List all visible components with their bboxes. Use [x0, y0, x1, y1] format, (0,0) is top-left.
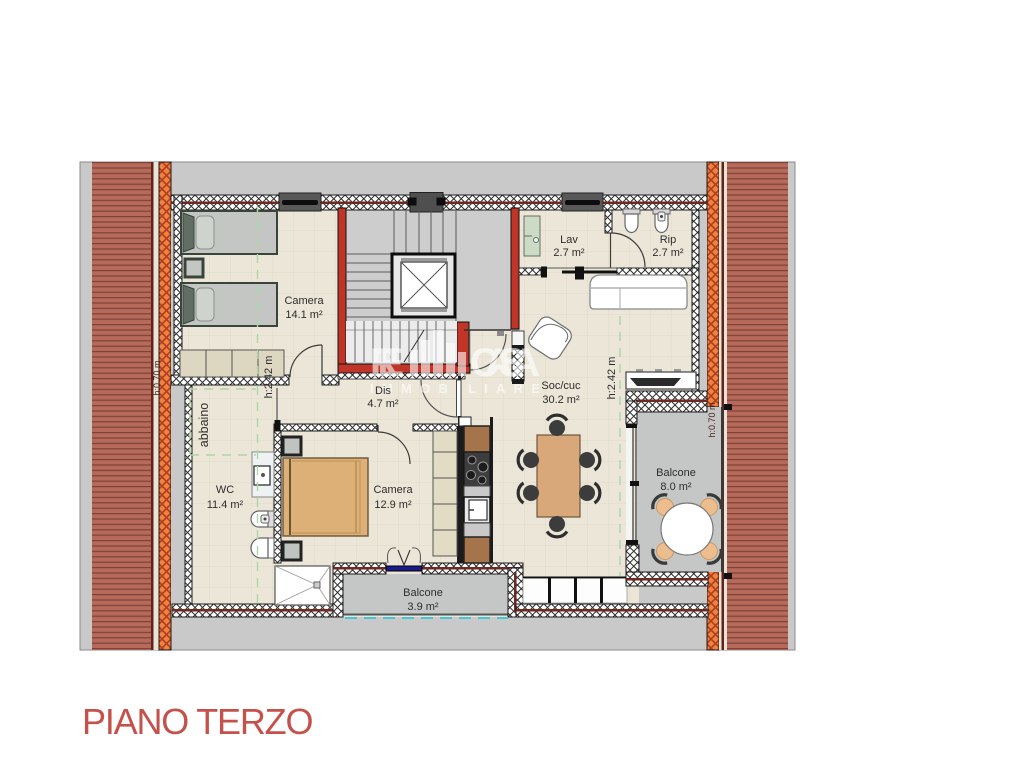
svg-text:Balcone: Balcone	[656, 467, 696, 479]
svg-text:h:0.70 m: h:0.70 m	[152, 360, 162, 395]
svg-text:11.4 m²: 11.4 m²	[207, 499, 244, 511]
svg-text:Lav: Lav	[560, 234, 578, 246]
svg-text:abbaino: abbaino	[197, 403, 211, 448]
svg-text:Balcone: Balcone	[403, 587, 443, 599]
svg-text:8.0 m²: 8.0 m²	[660, 481, 692, 493]
svg-text:30.2 m²: 30.2 m²	[542, 394, 580, 406]
svg-text:Camera: Camera	[284, 295, 324, 307]
svg-text:4.7 m²: 4.7 m²	[367, 398, 399, 410]
svg-text:2.7 m²: 2.7 m²	[652, 247, 684, 259]
svg-text:h:0.70 m: h:0.70 m	[707, 402, 717, 437]
svg-text:WC: WC	[216, 484, 234, 496]
svg-text:14.1 m²: 14.1 m²	[285, 309, 323, 321]
svg-text:Dis: Dis	[375, 385, 391, 397]
svg-text:CASA: CASA	[470, 341, 540, 385]
svg-text:h:2.42 m: h:2.42 m	[606, 357, 618, 400]
svg-text:Camera: Camera	[373, 484, 413, 496]
svg-text:PIANO TERZO: PIANO TERZO	[82, 701, 314, 742]
svg-text:RE: RE	[370, 341, 404, 385]
svg-text:Rip: Rip	[660, 234, 677, 246]
svg-text:3.9 m²: 3.9 m²	[407, 601, 439, 613]
svg-text:12.9 m²: 12.9 m²	[374, 499, 412, 511]
svg-text:2.7 m²: 2.7 m²	[553, 247, 585, 259]
svg-text:Soc/cuc: Soc/cuc	[541, 380, 581, 392]
svg-text:h:2.42 m: h:2.42 m	[263, 356, 275, 399]
